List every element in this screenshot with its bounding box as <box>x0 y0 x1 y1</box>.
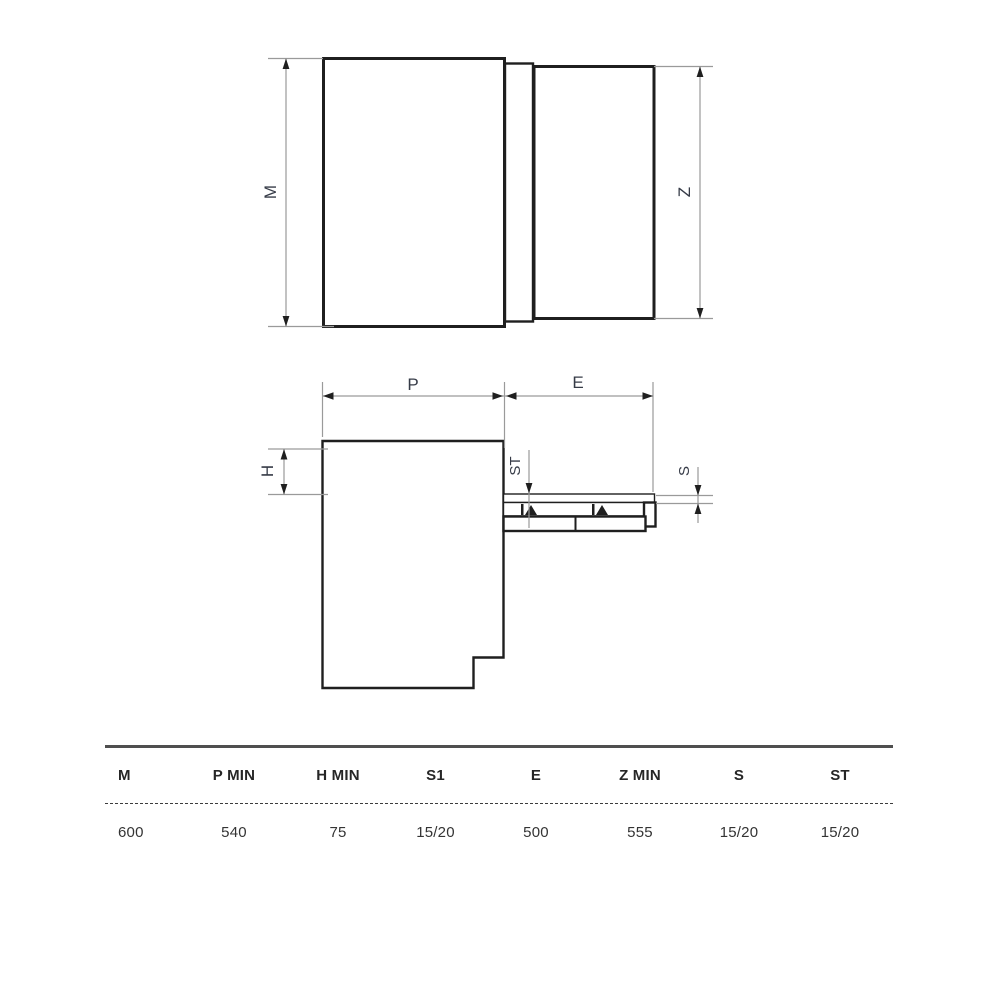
side-view-diagram: P E H <box>258 373 713 688</box>
arrowhead-left <box>323 392 334 399</box>
slide-top-rail <box>504 494 655 503</box>
arrowhead-up <box>697 67 704 78</box>
dim-label-P: P <box>407 375 418 394</box>
spec-table-header-row: M P MIN H MIN S1 E Z MIN S ST <box>105 748 893 804</box>
dimension-S: S <box>656 466 713 523</box>
value-s: 15/20 <box>691 824 787 841</box>
dim-label-S: S <box>676 466 693 476</box>
dimension-Z: Z <box>654 67 713 319</box>
arrowhead-up <box>695 504 702 515</box>
value-st: 15/20 <box>787 824 893 841</box>
arrowhead-down <box>697 308 704 319</box>
slide-assembly <box>504 494 656 531</box>
arrowhead-left <box>506 392 517 399</box>
arrowhead-up <box>283 59 290 70</box>
value-m: 600 <box>105 824 180 841</box>
value-s1: 15/20 <box>388 824 483 841</box>
arrowhead-down <box>526 483 533 494</box>
cabinet-side-outline <box>323 441 504 688</box>
dimension-H: H <box>258 449 328 495</box>
arrowhead-down <box>283 316 290 327</box>
value-e: 500 <box>483 824 589 841</box>
spec-table-value-row: 600 540 75 15/20 500 555 15/20 15/20 <box>105 804 893 861</box>
col-header-e: E <box>483 767 589 784</box>
value-p-min: 540 <box>180 824 288 841</box>
value-z-min: 555 <box>589 824 691 841</box>
col-header-m: M <box>105 767 180 784</box>
col-header-h-min: H MIN <box>288 767 388 784</box>
col-header-st: ST <box>787 767 893 784</box>
col-header-s1: S1 <box>388 767 483 784</box>
dim-label-M: M <box>261 185 280 199</box>
door-edge-rect <box>505 64 533 322</box>
col-header-p-min: P MIN <box>180 767 288 784</box>
dimension-diagrams: M Z <box>0 0 1000 720</box>
front-view-diagram: M Z <box>261 59 713 327</box>
col-header-z-min: Z MIN <box>589 767 691 784</box>
spec-table: M P MIN H MIN S1 E Z MIN S ST 600 540 75… <box>105 745 893 861</box>
arrowhead-down <box>695 485 702 496</box>
col-header-s: S <box>691 767 787 784</box>
dim-label-H: H <box>258 465 277 477</box>
arrowhead-up <box>281 449 288 460</box>
value-h-min: 75 <box>288 824 388 841</box>
arrowhead-down <box>281 484 288 495</box>
dim-label-Z: Z <box>675 187 694 197</box>
dim-label-ST: ST <box>507 456 524 475</box>
pullout-panel-rect <box>534 67 654 319</box>
slide-middle-rail <box>504 503 650 517</box>
spec-sheet: M Z <box>0 0 1000 1000</box>
cabinet-body-rect <box>324 59 505 327</box>
arrowhead-right <box>493 392 504 399</box>
arrowhead-right <box>643 392 654 399</box>
dim-label-E: E <box>572 373 583 392</box>
